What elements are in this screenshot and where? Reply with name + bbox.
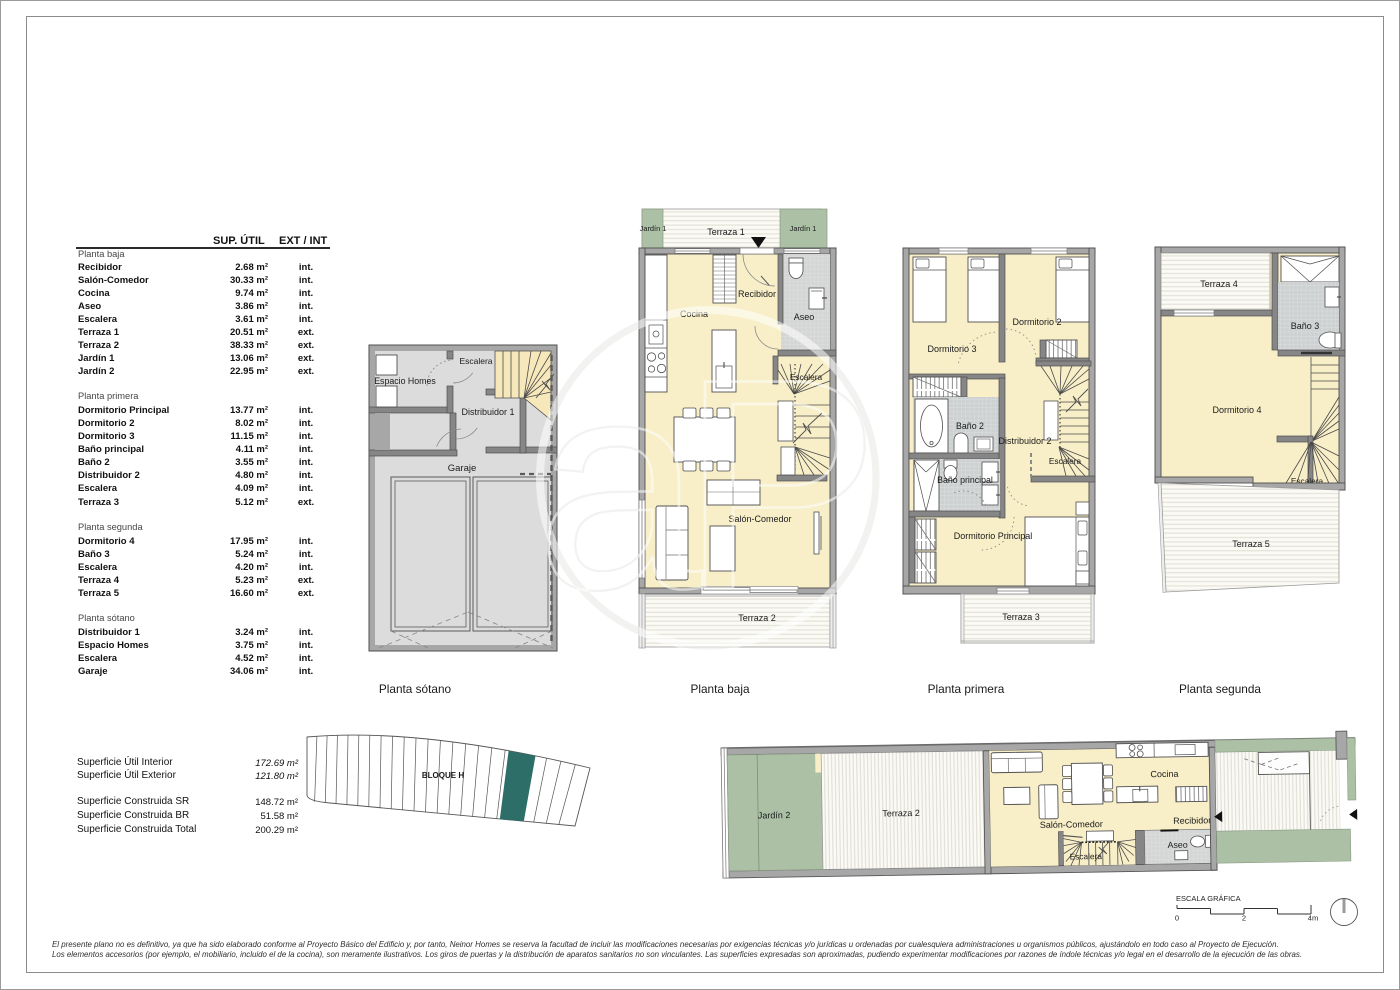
svg-text:Escalera: Escalera	[1049, 456, 1082, 466]
svg-text:BLOQUE H: BLOQUE H	[422, 771, 464, 780]
svg-text:2: 2	[1242, 914, 1246, 923]
svg-text:Distribuidor 2: Distribuidor 2	[998, 436, 1051, 446]
svg-text:Terraza 3: Terraza 3	[1002, 612, 1040, 622]
svg-text:Espacio Homes: Espacio Homes	[374, 376, 436, 386]
svg-text:Terraza 5: Terraza 5	[1232, 539, 1270, 549]
svg-text:Salón-Comedor: Salón-Comedor	[1040, 819, 1103, 830]
svg-text:Aseo: Aseo	[1168, 840, 1188, 850]
svg-text:aP: aP	[536, 316, 868, 652]
svg-text:Terraza 1: Terraza 1	[707, 227, 745, 237]
svg-text:Terraza 2: Terraza 2	[882, 808, 920, 819]
svg-text:Terraza 4: Terraza 4	[1200, 279, 1238, 289]
svg-text:0: 0	[1175, 914, 1179, 923]
svg-text:Escalera: Escalera	[459, 356, 492, 366]
svg-text:Distribuidor 1: Distribuidor 1	[461, 407, 514, 417]
svg-text:Recibidor: Recibidor	[738, 289, 776, 299]
svg-text:Planta sótano: Planta sótano	[379, 682, 452, 696]
svg-text:Planta segunda: Planta segunda	[1179, 682, 1261, 696]
svg-text:Baño 2: Baño 2	[956, 421, 984, 431]
svg-text:Planta primera: Planta primera	[928, 682, 1005, 696]
svg-text:Dormitorio 4: Dormitorio 4	[1212, 405, 1261, 415]
svg-text:Baño principal: Baño principal	[937, 475, 993, 485]
svg-text:Garaje: Garaje	[448, 463, 477, 474]
svg-text:Dormitorio Principal: Dormitorio Principal	[954, 531, 1033, 541]
svg-text:Dormitorio 2: Dormitorio 2	[1012, 317, 1061, 327]
svg-text:Jardín 2: Jardín 2	[758, 810, 791, 821]
svg-text:Planta baja: Planta baja	[690, 682, 749, 696]
svg-text:Jardín 1: Jardín 1	[790, 224, 817, 233]
svg-text:Escalera: Escalera	[1070, 851, 1103, 862]
svg-text:Recibidor: Recibidor	[1173, 815, 1211, 826]
svg-text:Jardín 1: Jardín 1	[640, 224, 667, 233]
svg-text:Cocina: Cocina	[1150, 769, 1178, 779]
svg-text:Baño 3: Baño 3	[1291, 321, 1320, 331]
svg-text:ESCALA GRÁFICA: ESCALA GRÁFICA	[1176, 894, 1241, 903]
svg-text:Dormitorio 3: Dormitorio 3	[927, 344, 976, 354]
svg-text:4m: 4m	[1308, 914, 1318, 923]
